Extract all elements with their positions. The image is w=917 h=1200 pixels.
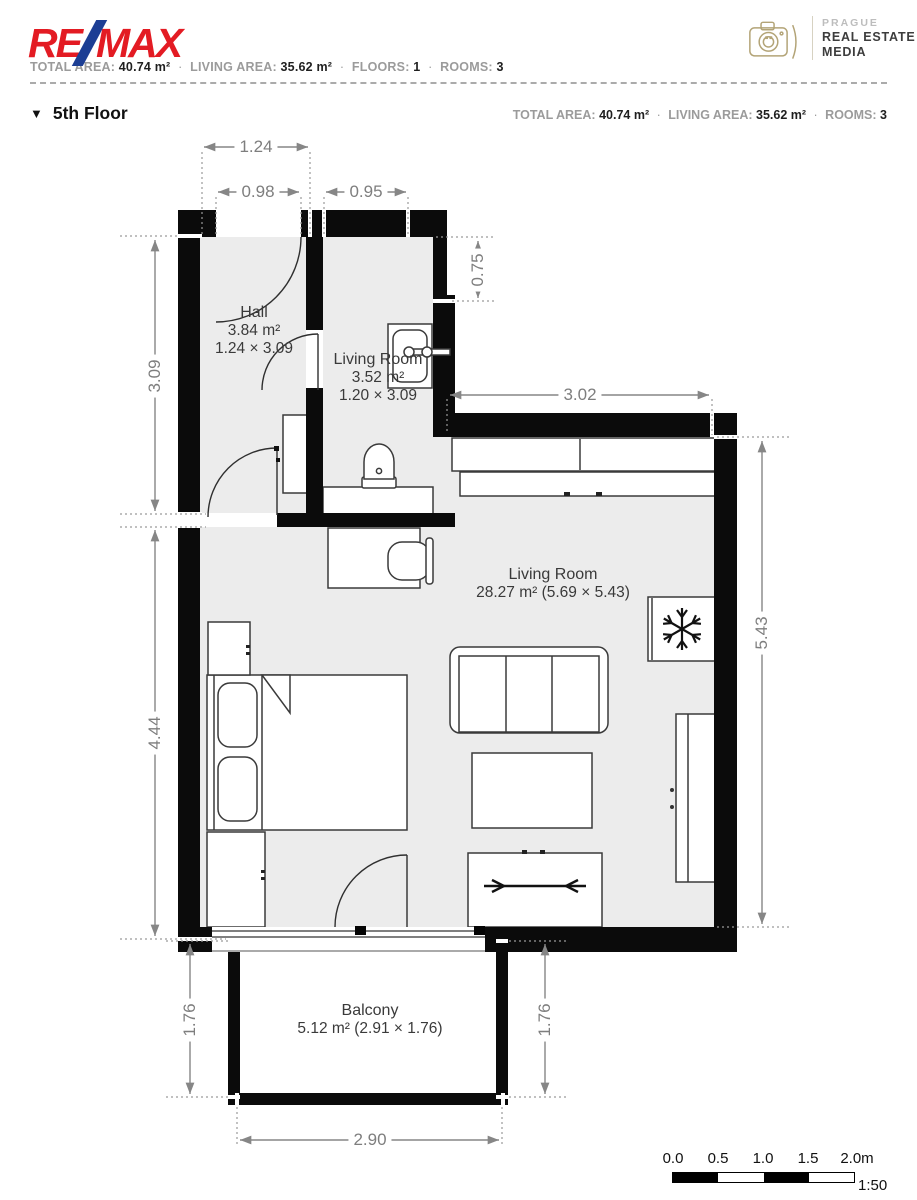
floorplan-drawing <box>0 0 917 1200</box>
dim-top-width: 1.24 <box>234 137 277 157</box>
bathroom-size: 1.20 × 3.09 <box>334 387 423 405</box>
pillow <box>218 683 257 747</box>
scale-label-15: 1.5 <box>798 1150 819 1167</box>
sliding-wardrobe <box>468 850 602 927</box>
scale-label-10: 1.0 <box>753 1150 774 1167</box>
tv-cabinet <box>670 714 716 882</box>
bathroom-name: Living Room <box>334 351 423 369</box>
remax-logo-max: MAX <box>96 20 181 66</box>
pillow <box>218 757 257 821</box>
balcony-wall-left <box>228 940 240 1105</box>
sofa <box>450 647 608 733</box>
stat-separator: · <box>428 60 432 74</box>
remax-logo-re: RE <box>28 20 81 66</box>
hall-name: Hall <box>215 304 293 322</box>
dim-living-height: 5.43 <box>752 611 772 654</box>
balcony-label: Balcony 5.12 m² (2.91 × 1.76) <box>297 1002 442 1038</box>
scale-bar <box>672 1172 855 1183</box>
office-chair <box>388 538 433 584</box>
balcony-area-size: 5.12 m² (2.91 × 1.76) <box>297 1020 442 1038</box>
dim-kitchen-width: 3.02 <box>558 385 601 405</box>
living-area-label: LIVING AREA: <box>190 60 277 74</box>
living-room-label: Living Room 28.27 m² (5.69 × 5.43) <box>476 566 630 602</box>
dim-balcony-width: 2.90 <box>348 1130 391 1150</box>
living-room-name: Living Room <box>476 566 630 584</box>
scale-ratio: 1:50 <box>858 1177 887 1194</box>
dim-entrance-width: 0.98 <box>236 182 279 202</box>
coffee-table <box>472 753 592 828</box>
dashed-divider <box>30 82 887 84</box>
floors-value: 1 <box>413 60 420 74</box>
balcony-window <box>212 926 485 952</box>
stat-separator: · <box>340 60 344 74</box>
dim-upper-height: 3.09 <box>145 354 165 397</box>
remax-logo: RE MAX <box>28 20 181 66</box>
bathroom-label: Living Room 3.52 m² 1.20 × 3.09 <box>334 351 423 405</box>
dim-lower-height: 4.44 <box>145 711 165 754</box>
rooms-value: 3 <box>496 60 503 74</box>
hall-size: 1.24 × 3.09 <box>215 340 293 358</box>
dim-balcony-height-left: 1.76 <box>180 998 200 1041</box>
balcony-wall-bottom <box>228 1093 508 1105</box>
dim-balcony-height-right: 1.76 <box>535 998 555 1041</box>
hall-area: 3.84 m² <box>215 322 293 340</box>
nightstand <box>208 622 250 675</box>
floorplan-page: TOTAL AREA: 40.74 m² · LIVING AREA: 35.6… <box>0 0 917 1200</box>
bathroom-area: 3.52 m² <box>334 369 423 387</box>
scale-label-0: 0.0 <box>663 1150 684 1167</box>
wardrobe <box>207 832 265 927</box>
floors-label: FLOORS: <box>352 60 410 74</box>
rooms-label: ROOMS: <box>440 60 493 74</box>
balcony-name: Balcony <box>297 1002 442 1020</box>
dim-bath-width: 0.95 <box>344 182 387 202</box>
scale-label-20: 2.0m <box>840 1150 873 1167</box>
living-room-area-size: 28.27 m² (5.69 × 5.43) <box>476 584 630 602</box>
bed <box>207 675 407 830</box>
hall-cabinet <box>283 415 307 493</box>
dim-notch-height: 0.75 <box>468 248 488 291</box>
balcony-wall-right <box>496 940 508 1105</box>
bathroom-sink-counter <box>323 487 433 514</box>
kitchen-counter <box>452 438 715 496</box>
scale-label-05: 0.5 <box>708 1150 729 1167</box>
living-area-value: 35.62 m² <box>281 60 333 74</box>
fridge <box>648 597 716 661</box>
hall-label: Hall 3.84 m² 1.24 × 3.09 <box>215 304 293 358</box>
toilet <box>362 444 396 488</box>
